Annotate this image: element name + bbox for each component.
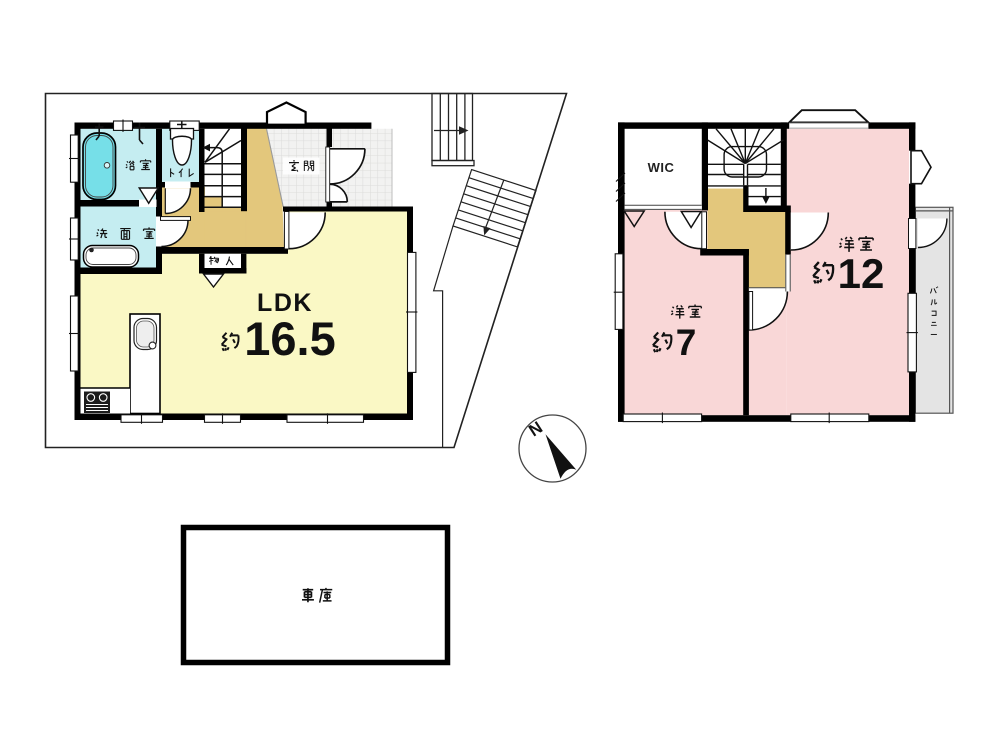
svg-text:12: 12 — [838, 250, 885, 297]
svg-text:16.5: 16.5 — [244, 312, 335, 365]
svg-text:WIC: WIC — [648, 160, 675, 175]
svg-text:7: 7 — [676, 322, 697, 363]
